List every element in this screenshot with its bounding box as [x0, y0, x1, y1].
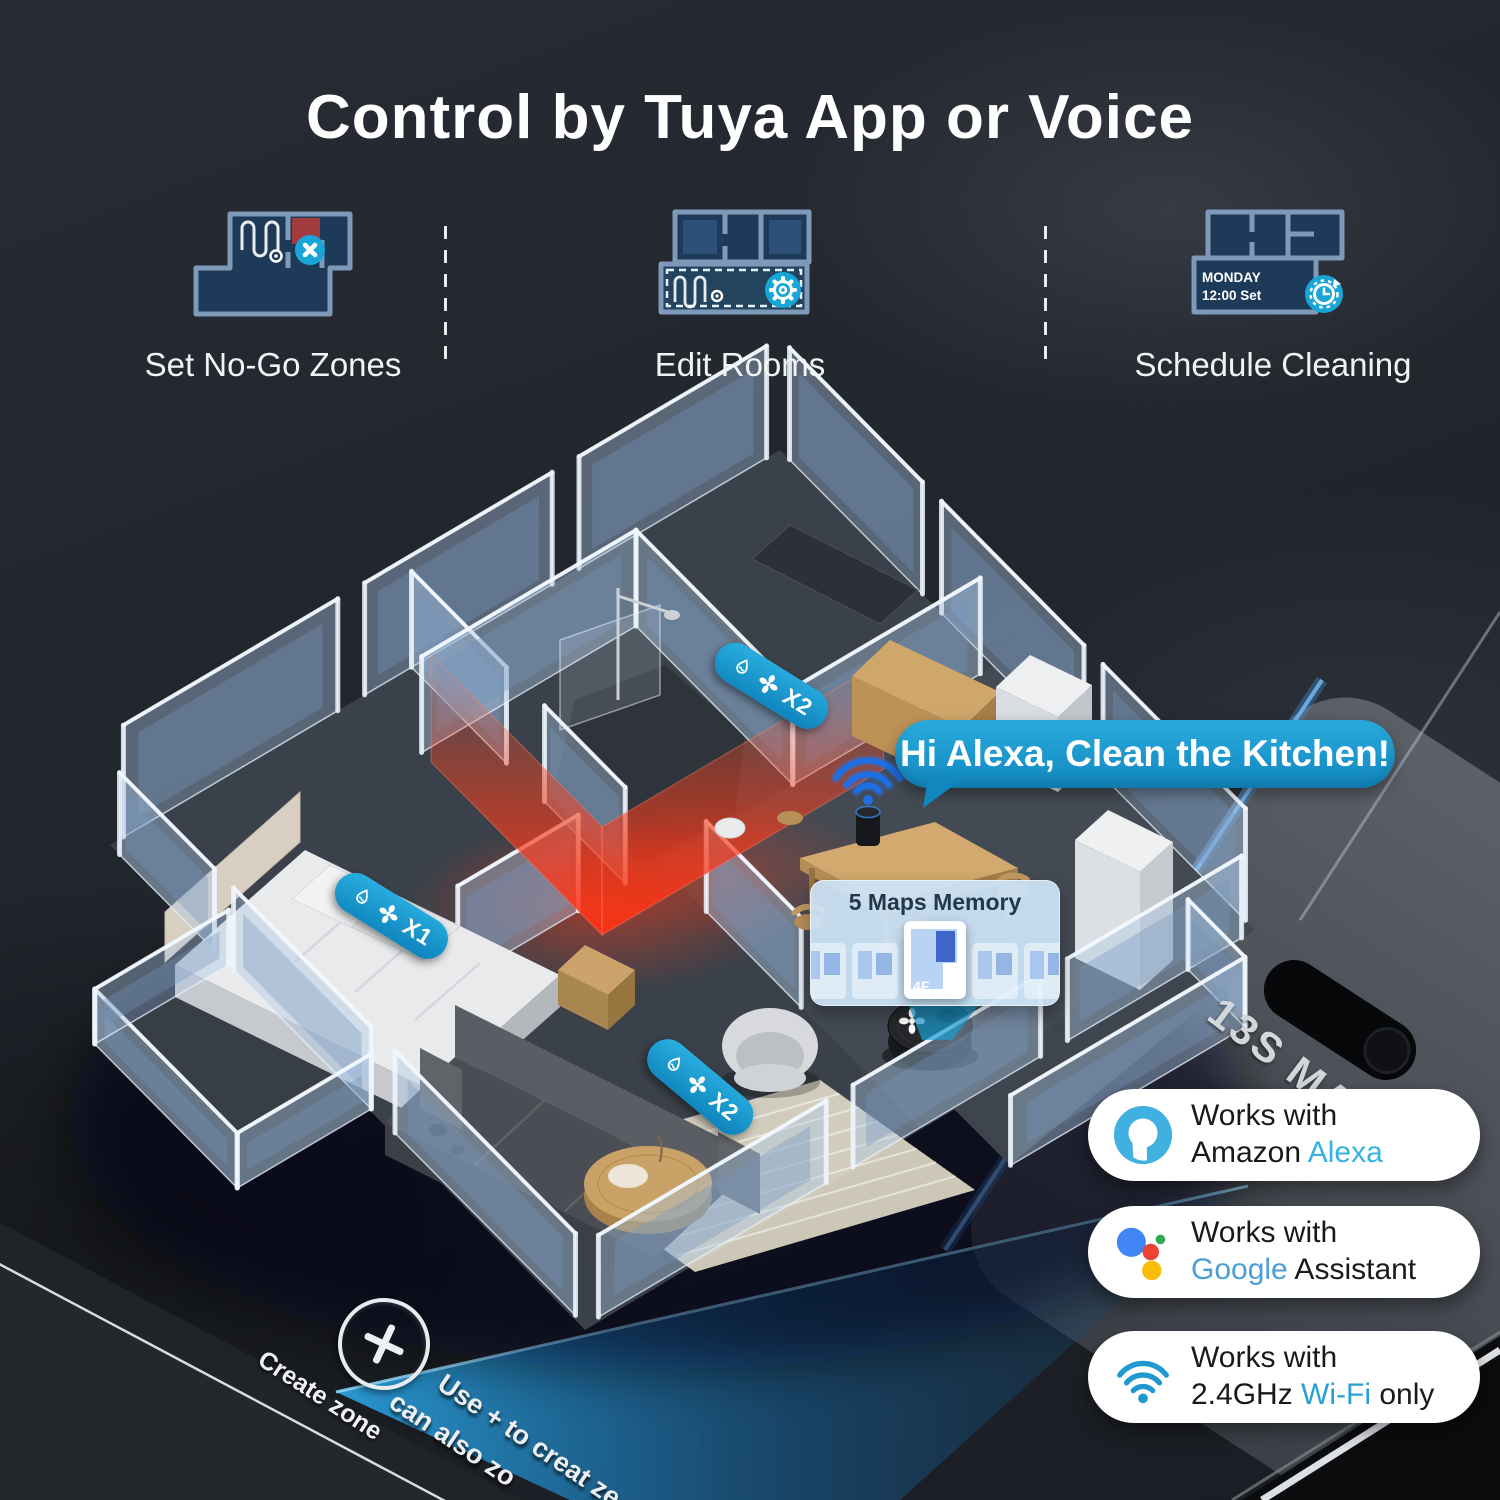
- compat-line2: 2.4GHz Wi-Fi only: [1191, 1377, 1434, 1414]
- feature-label: Set No-Go Zones: [128, 346, 418, 384]
- no-go-x-icon[interactable]: [295, 235, 325, 265]
- suction-count: X2: [778, 683, 818, 722]
- fan-icon: [373, 898, 405, 930]
- feature-divider: [444, 226, 447, 364]
- compat-badge-alexa: Works with Amazon Alexa: [1088, 1089, 1480, 1181]
- fan-icon: [681, 1069, 713, 1101]
- map-carousel: 4F: [810, 921, 1060, 999]
- feature-schedule-cleaning: MONDAY 12:00 Set Schedule Cleaning: [1128, 206, 1418, 384]
- page-title: Control by Tuya App or Voice: [0, 82, 1500, 153]
- fan-icon: [753, 668, 785, 700]
- suction-count: X1: [398, 913, 438, 952]
- smart-speaker: [856, 807, 880, 847]
- water-drop-icon: [346, 882, 378, 914]
- suction-count: X2: [704, 1087, 744, 1127]
- feature-no-go-zones: Set No-Go Zones: [128, 206, 418, 384]
- armchair: [720, 1008, 820, 1098]
- water-drop-icon: [726, 652, 758, 684]
- map-thumb[interactable]: [810, 943, 846, 999]
- map-thumb-active[interactable]: 4F: [904, 921, 966, 999]
- feature-divider: [1044, 226, 1047, 364]
- compat-line2: Amazon Alexa: [1191, 1135, 1383, 1172]
- map-thumb[interactable]: [972, 943, 1018, 999]
- feature-edit-rooms: Edit Rooms: [595, 206, 885, 384]
- gear-icon[interactable]: [765, 272, 801, 308]
- schedule-cleaning-icon: MONDAY 12:00 Set: [1188, 206, 1358, 324]
- schedule-time: 12:00 Set: [1202, 288, 1262, 303]
- compat-line1: Works with: [1191, 1098, 1383, 1135]
- maps-memory-popup: 5 Maps Memory 4F: [810, 880, 1060, 1006]
- compat-line1: Works with: [1191, 1215, 1416, 1252]
- marketing-page: Control by Tuya App or Voice Set No-Go Z…: [0, 0, 1500, 1500]
- compat-line2: Google Assistant: [1191, 1252, 1416, 1289]
- no-go-zones-icon: [188, 206, 358, 324]
- water-drop-icon: [658, 1049, 690, 1081]
- wifi-icon: [1112, 1346, 1174, 1408]
- compat-line1: Works with: [1191, 1340, 1434, 1377]
- schedule-day: MONDAY: [1202, 270, 1261, 285]
- google-assistant-icon: [1112, 1221, 1174, 1283]
- map-floor-label: 4F: [913, 978, 929, 994]
- maps-popup-title: 5 Maps Memory: [811, 889, 1059, 916]
- map-thumb[interactable]: [1024, 943, 1060, 999]
- compat-badge-wifi: Works with 2.4GHz Wi-Fi only: [1088, 1331, 1480, 1423]
- map-thumb[interactable]: [852, 943, 898, 999]
- speech-bubble: Hi Alexa, Clean the Kitchen!: [895, 720, 1395, 788]
- compat-badge-google: Works with Google Assistant: [1088, 1206, 1480, 1298]
- clock-icon[interactable]: [1305, 275, 1343, 313]
- feature-label: Edit Rooms: [595, 346, 885, 384]
- edit-rooms-icon: [655, 206, 825, 324]
- amazon-alexa-icon: [1112, 1104, 1174, 1166]
- feature-label: Schedule Cleaning: [1128, 346, 1418, 384]
